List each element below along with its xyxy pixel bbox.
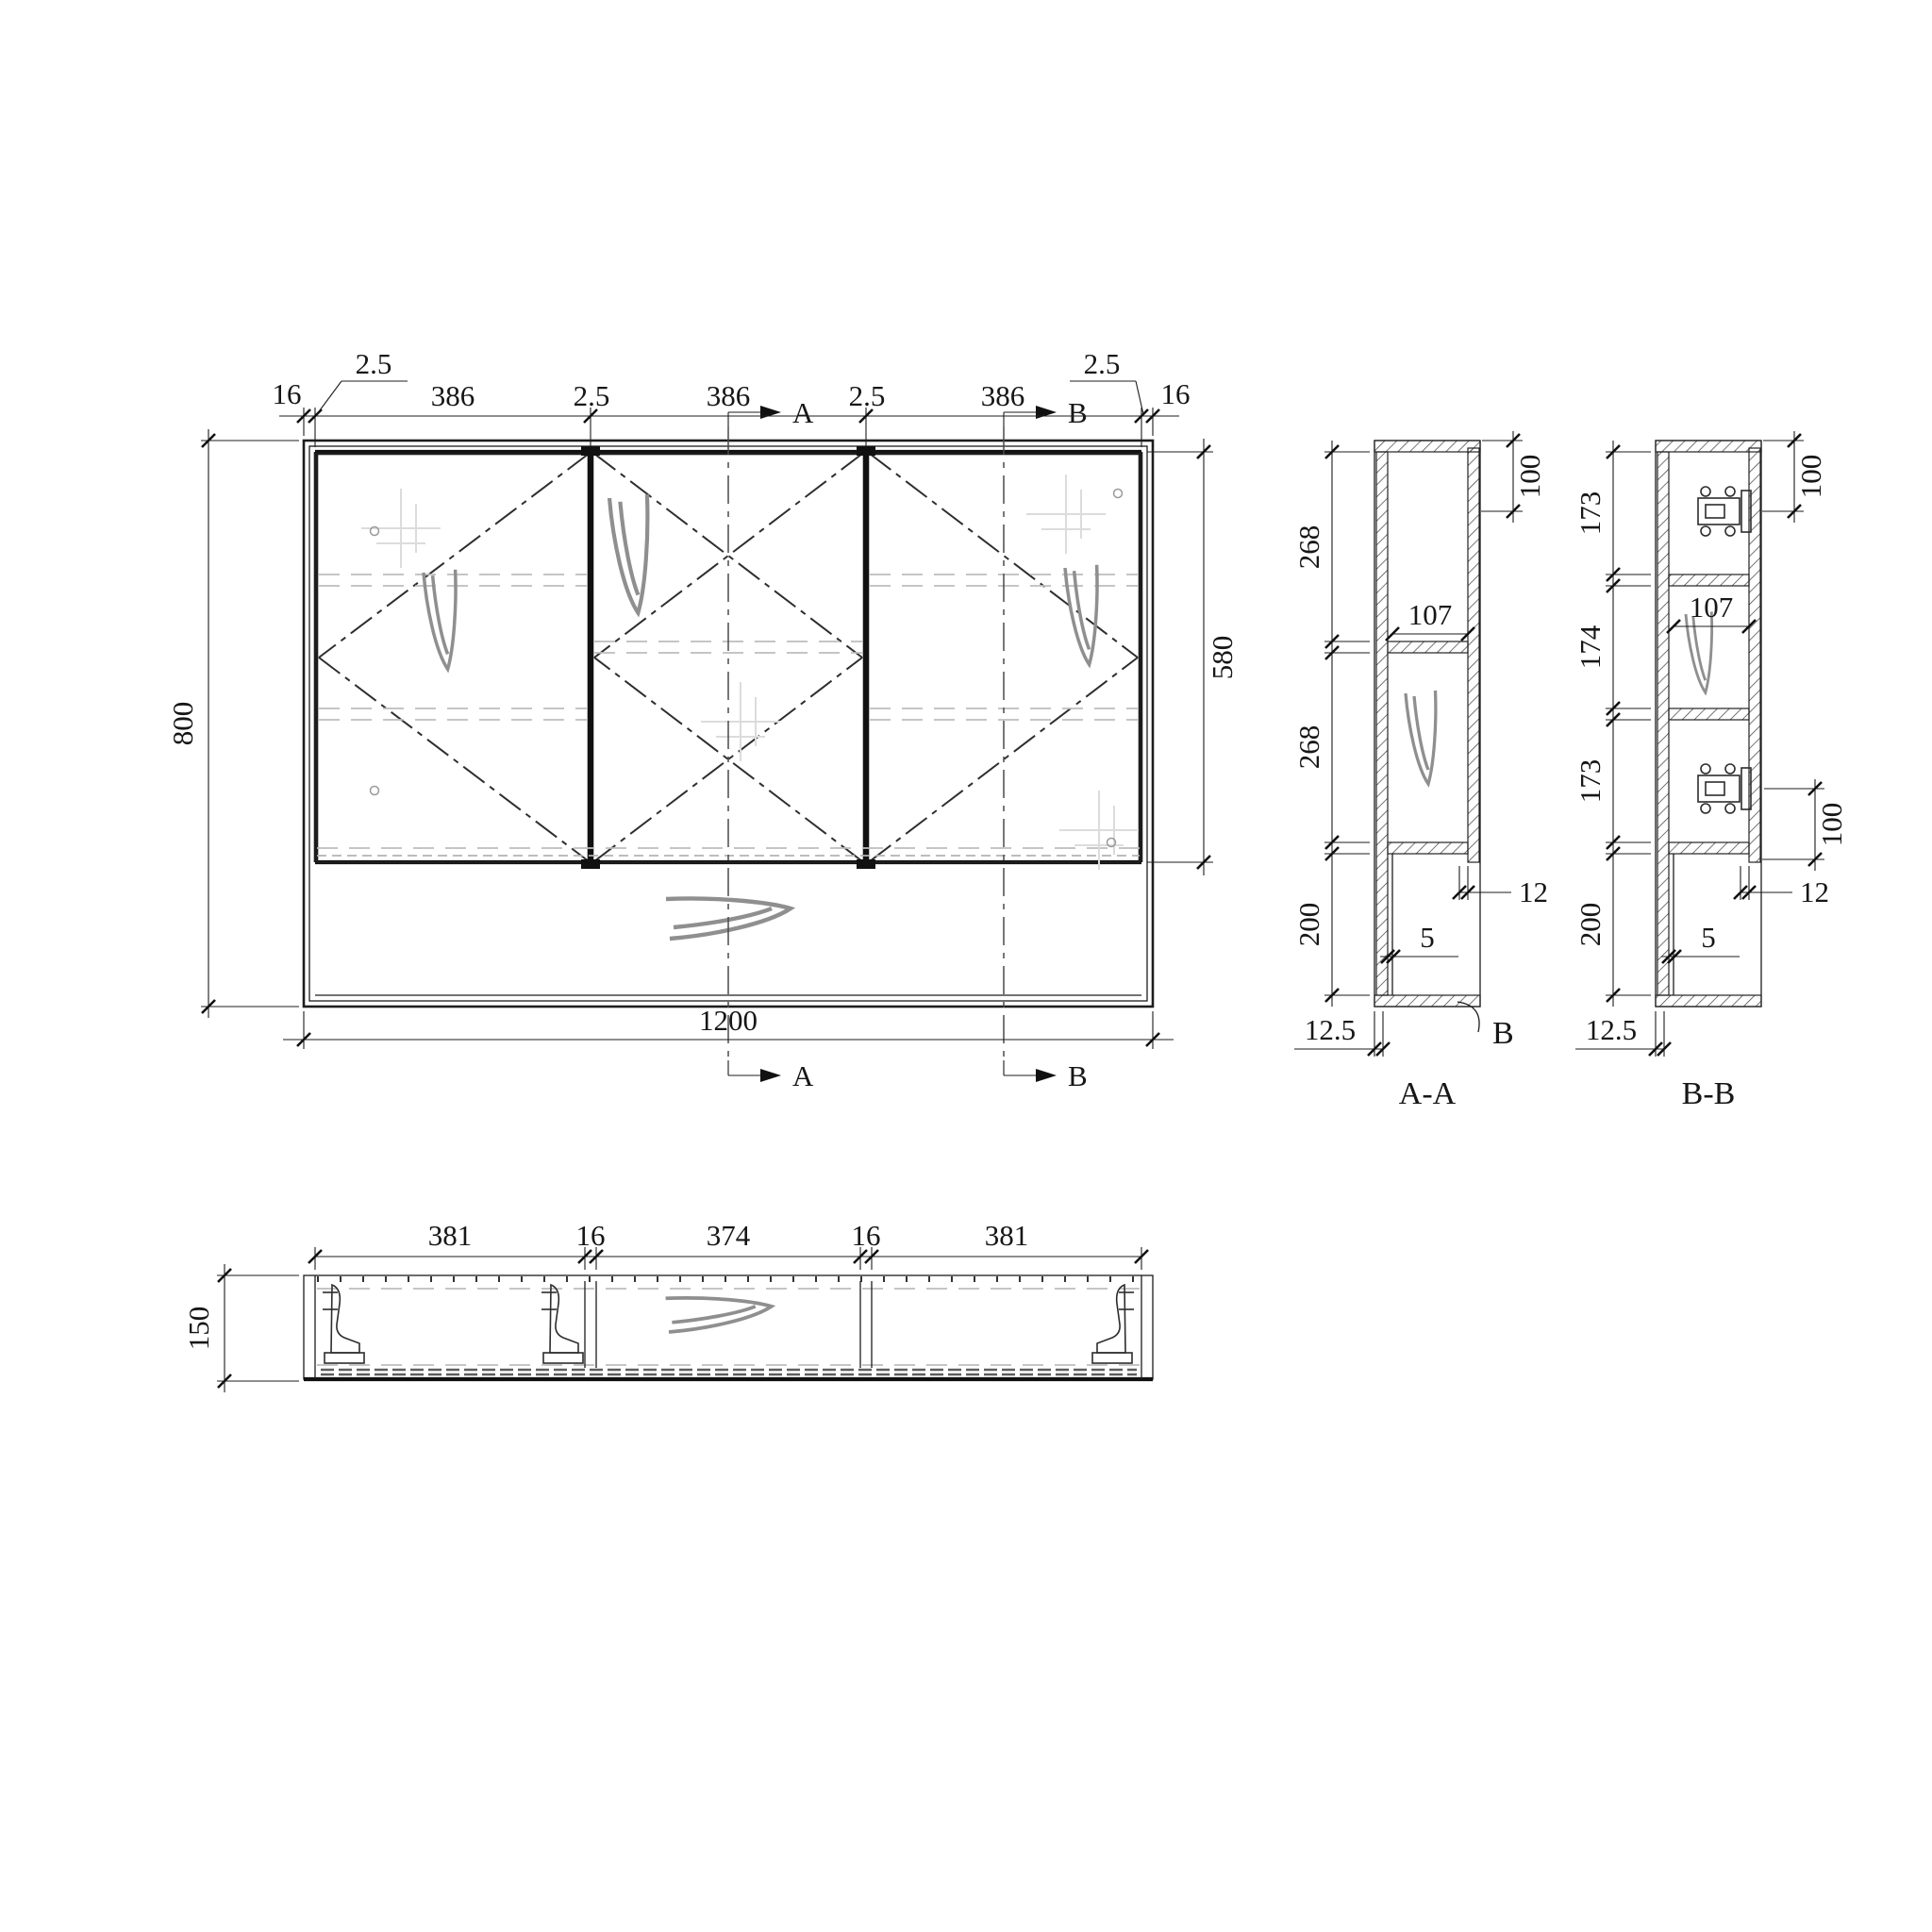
- dim-bb-interior-width: 107: [1690, 591, 1734, 624]
- section-aa-label: A-A: [1399, 1076, 1457, 1111]
- dim-aa-hinge-top: 100: [1513, 455, 1546, 499]
- back-panel: [1657, 452, 1669, 995]
- hidden-shelf-lines: [317, 575, 1140, 856]
- section-marker-a-top: A: [792, 396, 814, 429]
- section-aa-left-dimensions: 268 268 200: [1292, 441, 1370, 1007]
- dim-plan-16-right: 16: [852, 1219, 881, 1252]
- dim-aa-bottom: 12.5: [1305, 1013, 1356, 1046]
- plan-top-dimensions: 381 16 374 16 381: [308, 1219, 1148, 1270]
- hinge-icon: [1698, 487, 1751, 536]
- dim-bb-hinge-top: 100: [1794, 455, 1827, 499]
- front-view: A A B B 16: [166, 347, 1239, 1092]
- hinge-icon: [323, 1285, 364, 1363]
- dim-front-gap-left: 2.5: [356, 347, 392, 380]
- dim-aa-268b: 268: [1292, 725, 1325, 770]
- section-aa-view: B 268 268 200 100 107: [1292, 431, 1548, 1111]
- shelf: [1669, 575, 1749, 586]
- section-bb-left-dimensions: 173 174 173 200: [1574, 441, 1651, 1007]
- bottom-panel: [1656, 995, 1761, 1007]
- dim-front-door-height: 580: [1206, 636, 1239, 680]
- dim-front-gap-2: 2.5: [574, 379, 610, 412]
- front-right-dimension: 580: [1147, 439, 1239, 875]
- plan-outline: [304, 1275, 1153, 1379]
- cad-drawing-canvas: A A B B 16: [0, 0, 1932, 1932]
- section-marker-b-top: B: [1068, 396, 1088, 429]
- door-divider: [588, 452, 593, 862]
- dim-plan-374: 374: [707, 1219, 751, 1252]
- hinge-icon: [1698, 764, 1751, 813]
- door-divider: [863, 452, 869, 862]
- section-bb-dim-12: 12: [1734, 866, 1829, 908]
- dim-front-door1: 386: [431, 379, 475, 412]
- etch-marks: [361, 475, 1139, 939]
- v-mark-icon: [1406, 691, 1436, 784]
- dim-aa-268a: 268: [1292, 525, 1325, 570]
- v-mark-icon: [1065, 565, 1097, 665]
- plan-left-dimension: 150: [182, 1264, 299, 1392]
- dim-front-gap-right: 2.5: [1084, 347, 1121, 380]
- dim-plan-381-left: 381: [428, 1219, 473, 1252]
- detail-label-b: B: [1492, 1016, 1514, 1051]
- dim-front-16-left: 16: [273, 377, 302, 410]
- section-marker-a-bottom: A: [792, 1059, 814, 1092]
- dim-bb-reveal: 12: [1800, 875, 1829, 908]
- dim-plan-381-right: 381: [985, 1219, 1029, 1252]
- dim-aa-back-gap: 5: [1420, 921, 1435, 954]
- hinge-icon: [541, 1285, 583, 1363]
- dim-plan-16-left: 16: [576, 1219, 606, 1252]
- dim-bb-173b: 173: [1574, 759, 1607, 804]
- section-marker-b-bottom: B: [1068, 1059, 1088, 1092]
- section-aa-dim-100: 100: [1481, 431, 1546, 523]
- dim-bb-200: 200: [1574, 903, 1607, 947]
- shelf: [1669, 842, 1749, 854]
- drawing-sheet: A A B B 16: [0, 0, 1932, 1932]
- section-line-b: B B: [1004, 396, 1088, 1092]
- top-panel: [1656, 441, 1761, 452]
- dim-front-width: 1200: [699, 1004, 758, 1037]
- front-top-dimensions: 16 2.5 386 2.5 386 2.5 386 2.5 16: [273, 347, 1191, 447]
- section-aa-dim-125: 12.5: [1294, 1011, 1390, 1057]
- section-bb-dim-100-top: 100: [1762, 431, 1827, 523]
- mirror-door-section: [1468, 448, 1479, 862]
- dim-bb-bottom: 12.5: [1586, 1013, 1637, 1046]
- v-mark-icon: [1686, 611, 1712, 692]
- section-bb-view: 173 174 173 200 100 107 100: [1574, 431, 1848, 1111]
- shelf: [1388, 641, 1468, 653]
- dim-front-16-right: 16: [1161, 377, 1191, 410]
- dim-bb-173a: 173: [1574, 491, 1607, 536]
- section-bb-dim-100-mid: 100: [1762, 779, 1848, 871]
- dim-front-height: 800: [166, 702, 199, 746]
- shelf: [1388, 842, 1468, 854]
- section-bb-label: B-B: [1682, 1076, 1736, 1111]
- section-aa-dim-107: 107: [1386, 598, 1474, 641]
- back-panel: [1376, 452, 1388, 995]
- dim-plan-depth: 150: [182, 1307, 215, 1351]
- top-panel: [1374, 441, 1480, 452]
- v-mark-icon: [424, 570, 456, 670]
- mirror-door-left: [317, 454, 589, 862]
- dim-bb-174: 174: [1574, 625, 1607, 669]
- dim-front-door3: 386: [981, 379, 1025, 412]
- dim-front-door2: 386: [707, 379, 751, 412]
- dim-aa-200: 200: [1292, 903, 1325, 947]
- section-bb-dim-125: 12.5: [1575, 1011, 1671, 1057]
- dim-bb-back-gap: 5: [1701, 921, 1716, 954]
- bottom-panel: [1374, 995, 1480, 1007]
- front-left-dimension: 800: [166, 429, 299, 1018]
- hinge-icon: [1092, 1285, 1134, 1363]
- v-mark-icon: [609, 494, 647, 612]
- dim-front-gap-3: 2.5: [849, 379, 886, 412]
- section-aa-dim-12: 12: [1453, 866, 1548, 908]
- dim-bb-hinge-bottom: 100: [1815, 803, 1848, 847]
- plan-view: 381 16 374 16 381 150: [182, 1219, 1153, 1392]
- section-bb-dim-107: 107: [1667, 591, 1756, 633]
- shelf: [1669, 708, 1749, 720]
- dim-aa-reveal: 12: [1519, 875, 1548, 908]
- dim-aa-interior-width: 107: [1408, 598, 1453, 631]
- v-mark-icon: [666, 1298, 772, 1332]
